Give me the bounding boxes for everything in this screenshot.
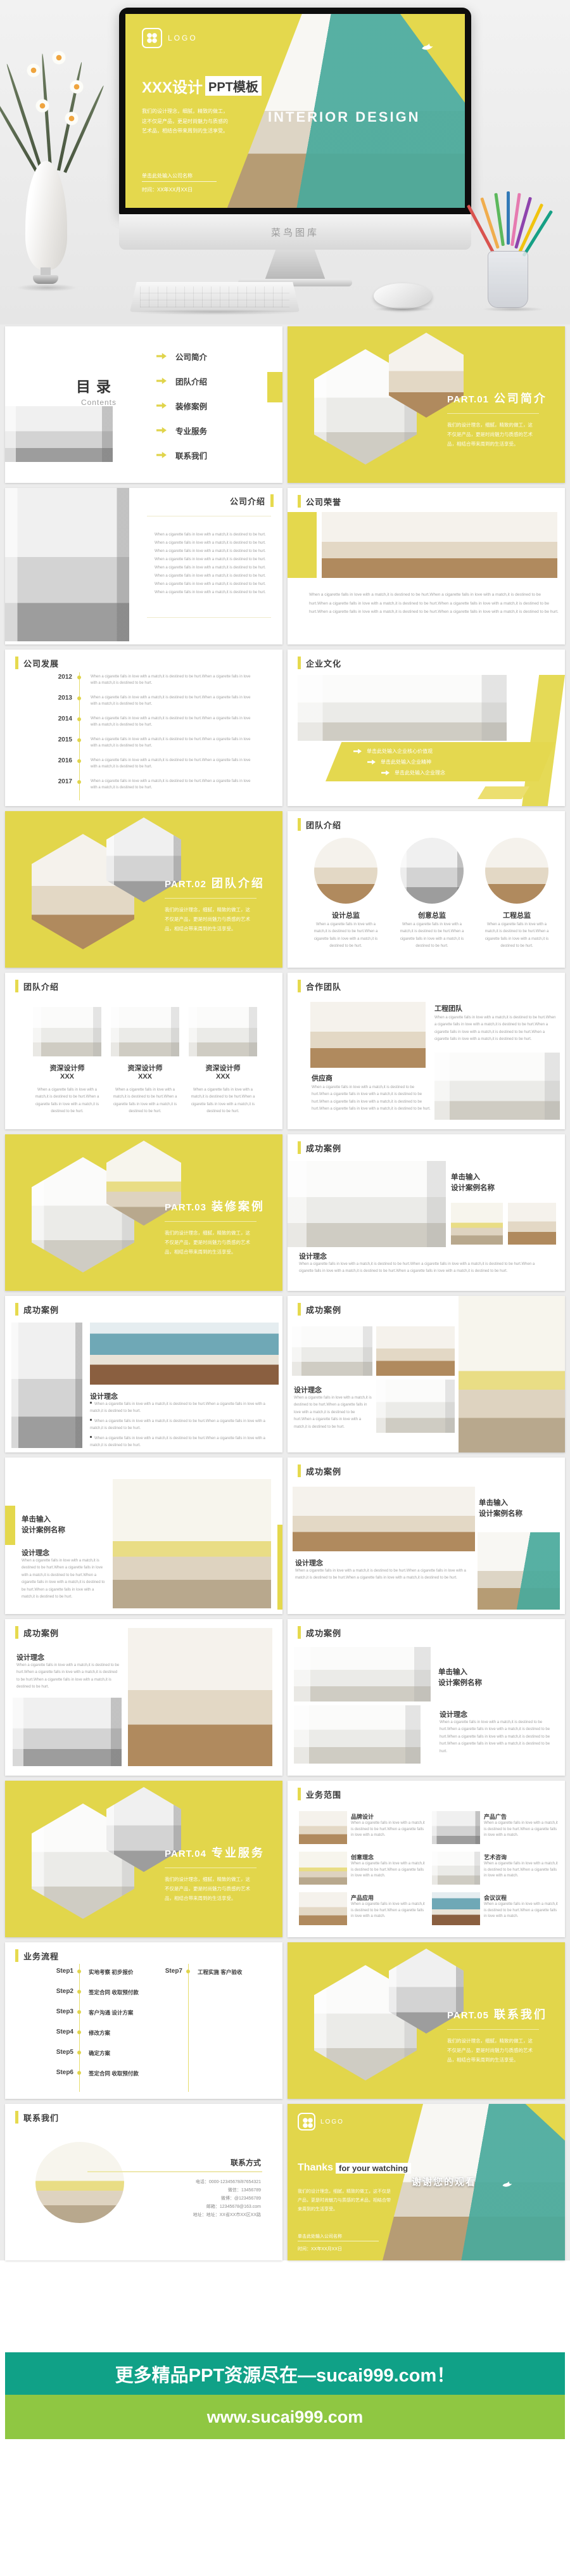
thanks-overlay: 谢谢您的观看 [412, 2175, 476, 2188]
concept-heading: 设计理念 [22, 1548, 49, 1558]
interior-photo [508, 1203, 556, 1245]
service-title: 产品应用 [351, 1894, 374, 1902]
service-title: 品牌设计 [351, 1812, 374, 1821]
slide-part-4: PART.04 专业服务 我们的设计理念，细腻，精致的做工，这不仅是产品，更是时… [5, 1781, 282, 1937]
title-body: 我们的设计理念，细腻，精致的做工，这不仅是产品，更是时尚魅力与质感的艺术品，相结… [142, 106, 232, 136]
accent-bar [298, 818, 301, 831]
timeline-year: 2014 [44, 715, 72, 722]
section-title: PART.03 装修案例 [165, 1198, 265, 1214]
interior-photo [451, 1203, 503, 1245]
interior-photo [294, 1705, 421, 1764]
service-photo [299, 1811, 347, 1844]
accent-bar [298, 1626, 301, 1639]
arrow-icon [156, 378, 167, 384]
interior-photo [293, 1487, 475, 1551]
service-title: 会议议程 [484, 1894, 507, 1902]
interior-photo [292, 1326, 372, 1376]
interior-photo [434, 1053, 560, 1120]
contact-line: 微博：@123456789 [221, 2195, 261, 2201]
case-heading: 单击输入设计案例名称 [451, 1172, 495, 1195]
slide-culture: 企业文化 单击此处输入企业核心价值观 单击此处输入企业精神 单击此处输入企业理念 [288, 650, 565, 806]
slide-title: 业务流程 [15, 1949, 59, 1962]
accent-rect [288, 512, 317, 578]
flower-icon [65, 112, 79, 125]
role-label: 资深设计师XXX [111, 1063, 179, 1080]
case-heading: 单击输入设计案例名称 [479, 1498, 522, 1520]
mouse [374, 283, 432, 309]
interior-photo [459, 1296, 565, 1452]
arrow-icon [381, 771, 389, 776]
interior-photo [5, 406, 113, 462]
concept-heading: 设计理念 [295, 1558, 323, 1568]
screen-caption: INTERIOR DESIGN [268, 109, 421, 125]
accent-bar [298, 1303, 301, 1316]
role-label: 设计总监 [310, 910, 381, 920]
interior-photo [376, 1380, 455, 1433]
service-photo [299, 1852, 347, 1885]
toc-item: 公司简介 [156, 347, 207, 366]
accent-bar [270, 494, 274, 507]
slide-title: 团队介绍 [298, 818, 341, 831]
slide-services: 业务范围 品牌设计 When a cigarette falls in love… [288, 1781, 565, 1937]
logo: LOGO [142, 28, 198, 48]
company-line: 单击此处输入公司名称 [298, 2233, 342, 2240]
accent-bar [298, 1464, 301, 1477]
arrow-icon [156, 402, 167, 409]
toc-item: 装修案例 [156, 396, 207, 415]
pencil-cup [470, 190, 552, 311]
date-line: 时间：XX年XX月XX日 [298, 2246, 342, 2252]
interior-photo [33, 1007, 101, 1056]
culture-bullet: 单击此处输入企业核心价值观 [353, 748, 433, 755]
title-highlight: PPT模板 [205, 76, 262, 96]
slide-toc: 目录 Contents 公司简介 团队介绍 装修案例 专业服务 联系我们 [5, 326, 282, 483]
contact-line: 邮箱：12345678@163.com [206, 2203, 261, 2210]
body-text: When a cigarette falls in love with a ma… [309, 591, 559, 617]
portrait-photo [400, 838, 464, 904]
service-title: 艺术咨询 [484, 1853, 507, 1861]
slide-title: 业务范围 [298, 1788, 341, 1800]
slide-case-5: 成功案例 单击输入设计案例名称 设计理念 When a cigarette fa… [288, 1458, 565, 1614]
concept-heading: 设计理念 [299, 1251, 327, 1261]
interior-photo [478, 1532, 560, 1610]
culture-bullet: 单击此处输入企业理念 [381, 769, 445, 776]
block-heading: 供应商 [312, 1073, 332, 1083]
slide-case-6: 成功案例 设计理念 When a cigarette falls in love… [5, 1619, 282, 1776]
concept-heading: 设计理念 [294, 1385, 322, 1395]
interior-photo [113, 1479, 271, 1608]
slide-part-1: PART.01 公司简介 我们的设计理念，细腻，精致的做工，这不仅是产品，更是时… [288, 326, 565, 483]
slide-thanks: LOGO Thanks for your watching 我们的设计理念，细腻… [288, 2104, 565, 2260]
slide-case-7: 成功案例 单击输入设计案例名称 设计理念 When a cigarette fa… [288, 1619, 565, 1776]
slide-contact: 联系我们 联系方式 电话：0000-12345678/87654321 微信：1… [5, 2104, 282, 2260]
concept-heading: 设计理念 [440, 1709, 467, 1719]
keyboard [130, 282, 300, 312]
monitor-brand: 菜鸟图库 [271, 226, 319, 239]
page-title: XXX设计 PPT模板 [142, 75, 262, 97]
case-heading: 单击输入设计案例名称 [22, 1515, 65, 1537]
slide-title: 公司发展 [15, 657, 59, 669]
contact-line: 地址：地址：XX省XX市XX区XX路 [193, 2212, 261, 2218]
section-body: 我们的设计理念，细腻，精致的做工，这不仅是产品，更是时尚魅力与质感的艺术品，相结… [165, 1228, 255, 1257]
yellow-band [522, 675, 565, 806]
section-title: PART.05 联系我们 [447, 2006, 547, 2022]
timeline-year: 2012 [44, 674, 72, 681]
arrow-icon [353, 749, 362, 754]
portrait-photo [485, 838, 548, 904]
accent-parallelogram [478, 786, 529, 799]
logo-label: LOGO [168, 34, 198, 42]
monitor-chin: 菜鸟图库 [119, 214, 471, 250]
section-body: 我们的设计理念，细腻，精致的做工，这不仅是产品，更是时尚魅力与质感的艺术品，相结… [447, 420, 537, 449]
logo: LOGO [298, 2113, 344, 2131]
toc-item: 专业服务 [156, 421, 207, 440]
accent-bar [15, 2111, 18, 2124]
monitor-stand [265, 250, 326, 280]
arrow-icon [156, 427, 167, 433]
slide-part-5: PART.05 联系我们 我们的设计理念，细腻，精致的做工，这不仅是产品，更是时… [288, 1942, 565, 2099]
arrow-icon [367, 760, 376, 765]
culture-panel: 单击此处输入企业核心价值观 单击此处输入企业精神 单击此处输入企业理念 [326, 742, 555, 781]
slide-title: 公司介绍 [230, 494, 274, 507]
toc-item: 联系我们 [156, 445, 207, 465]
slide-title: 联系我们 [15, 2111, 59, 2124]
timeline-line [188, 1964, 189, 2092]
slide-title: 成功案例 [298, 1303, 341, 1316]
block-heading: 工程团队 [434, 1003, 462, 1013]
flower-icon [35, 99, 49, 113]
interior-photo [189, 1007, 257, 1056]
arrow-icon [156, 452, 167, 458]
thanks-title: Thanks for your watching [298, 2162, 411, 2174]
flower-icon [70, 80, 84, 94]
bird-icon [502, 2180, 513, 2188]
slide-title: 成功案例 [15, 1303, 59, 1316]
slide-title: 企业文化 [298, 657, 341, 669]
hero-banner: 菜鸟图库 INTERIOR DESIGN LOGO XXX设计 PPT模板 我们… [0, 0, 570, 324]
section-body: 我们的设计理念，细腻，精致的做工，这不仅是产品，更是时尚魅力与质感的艺术品，相结… [165, 905, 255, 933]
portrait-photo [314, 838, 377, 904]
flower-icon [52, 51, 66, 65]
role-label: 资深设计师XXX [189, 1063, 257, 1080]
slide-part-2: PART.02 团队介绍 我们的设计理念，细腻，精致的做工，这不仅是产品，更是时… [5, 811, 282, 968]
body-text: When a cigarette falls in love with a ma… [155, 531, 280, 597]
thanks-body: 我们的设计理念，细腻，精致的做工，这不仅是产品，更是时尚魅力与质感的艺术品，相结… [298, 2188, 393, 2214]
interior-photo [294, 1647, 431, 1701]
slide-title: 成功案例 [298, 1464, 341, 1477]
section-body: 我们的设计理念，细腻，精致的做工，这不仅是产品，更是时尚魅力与质感的艺术品，相结… [447, 2036, 537, 2065]
slide-team-directors: 团队介绍 设计总监 创意总监 工程总监 When a cigarette fal… [288, 811, 565, 968]
date-line: 时间：XX年XX月XX日 [142, 186, 193, 193]
accent-bar [15, 1949, 18, 1962]
interior-photo [13, 1698, 122, 1766]
portrait-photo [35, 2142, 124, 2223]
slide-part-3: PART.03 装修案例 我们的设计理念，细腻，精致的做工，这不仅是产品，更是时… [5, 1134, 282, 1291]
slide-case-1: 成功案例 单击输入设计案例名称 设计理念 When a cigarette fa… [288, 1134, 565, 1291]
slide-process: 业务流程 Step1实地考察 初步报价 Step2签定合同 收取预付款 Step… [5, 1942, 282, 2099]
interior-photo [288, 1161, 446, 1247]
section-title: PART.04 专业服务 [165, 1844, 265, 1861]
slide-company-dev: 公司发展 2012When a cigarette falls in love … [5, 650, 282, 806]
logo-icon [298, 2113, 315, 2131]
accent-rect [267, 372, 282, 402]
culture-bullet: 单击此处输入企业精神 [367, 759, 431, 766]
slide-company-intro: 公司介绍 When a cigarette falls in love with… [5, 488, 282, 644]
slide-title: 成功案例 [298, 1626, 341, 1639]
vase-with-flowers [5, 53, 100, 307]
accent-rect [277, 1525, 282, 1610]
logo-label: LOGO [320, 2118, 344, 2125]
role-label: 创意总监 [396, 910, 467, 920]
interior-photo [298, 675, 507, 741]
footer-bottom-spacer [0, 2439, 570, 2576]
slide-team-designers: 团队介绍 资深设计师XXX 资深设计师XXX 资深设计师XXX When a c… [5, 973, 282, 1129]
slide-case-3: 成功案例 设计理念 When a cigarette falls in love… [288, 1296, 565, 1452]
accent-bar [298, 980, 301, 992]
interior-photo [128, 1628, 272, 1766]
interior-photo [5, 488, 129, 641]
accent-bar [298, 1141, 301, 1154]
flower-icon [27, 63, 41, 77]
concept-heading: 设计理念 [16, 1652, 44, 1662]
section-title: PART.01 公司简介 [447, 390, 547, 406]
toc-heading: 目录 Contents [41, 375, 117, 407]
interior-photo [310, 1002, 426, 1068]
site-url-banner[interactable]: www.sucai999.com [5, 2395, 565, 2439]
contact-line: 电话：0000-12345678/87654321 [196, 2179, 261, 2185]
title-main: XXX设计 [142, 75, 203, 97]
promo-banner[interactable]: 更多精品PPT资源尽在—sucai999.com！ [5, 2352, 565, 2395]
service-photo [432, 1852, 480, 1885]
slide-case-2: 成功案例 设计理念 When a cigarette falls in love… [5, 1296, 282, 1452]
section-title: PART.02 团队介绍 [165, 875, 265, 891]
accent-bar [298, 1788, 301, 1800]
accent-bar [15, 980, 18, 992]
service-photo [432, 1811, 480, 1844]
interior-photo [376, 1326, 455, 1376]
timeline-year: 2017 [44, 778, 72, 785]
interior-photo [11, 1323, 82, 1448]
accent-rect [5, 1506, 15, 1545]
bullet-list: When a cigarette falls in love with a ma… [90, 1401, 275, 1449]
slide-title: 成功案例 [15, 1626, 59, 1639]
contact-heading: 联系方式 [231, 2157, 261, 2168]
slide-title: 合作团队 [298, 980, 341, 992]
slide-title: 公司荣誉 [298, 495, 341, 508]
slide-company-honor: 公司荣誉 When a cigarette falls in love with… [288, 488, 565, 644]
bird-icon [421, 42, 434, 51]
slide-case-4: 单击输入设计案例名称 设计理念 When a cigarette falls i… [5, 1458, 282, 1614]
section-body: 我们的设计理念，细腻，精致的做工，这不仅是产品，更是时尚魅力与质感的艺术品，相结… [165, 1874, 255, 1903]
slide-title: 团队介绍 [15, 980, 59, 992]
accent-bar [15, 1303, 18, 1316]
accent-bar [15, 1626, 18, 1639]
slide-title: 成功案例 [298, 1141, 341, 1154]
timeline-year: 2015 [44, 736, 72, 743]
service-title: 产品广告 [484, 1812, 507, 1821]
accent-bar [298, 495, 301, 508]
service-photo [432, 1892, 480, 1925]
contact-line: 微信：13456789 [228, 2187, 261, 2193]
role-label: 工程总监 [481, 910, 552, 920]
accent-bar [298, 657, 301, 669]
concept-heading: 设计理念 [90, 1391, 118, 1401]
timeline-year: 2016 [44, 757, 72, 764]
interior-photo [90, 1323, 279, 1385]
title-slide-preview: INTERIOR DESIGN LOGO XXX设计 PPT模板 我们的设计理念… [125, 14, 465, 208]
interior-photo [322, 512, 557, 578]
timeline-year: 2013 [44, 695, 72, 702]
slide-coop: 合作团队 工程团队 When a cigarette falls in love… [288, 973, 565, 1129]
accent-bar [15, 657, 18, 669]
service-photo [299, 1892, 347, 1925]
yellow-corner [370, 14, 465, 103]
service-title: 创意理念 [351, 1853, 374, 1861]
footer-spacer [0, 2260, 570, 2352]
arrow-icon [156, 353, 167, 359]
role-label: 资深设计师XXX [33, 1063, 101, 1080]
toc-item: 团队介绍 [156, 371, 207, 390]
logo-icon [142, 28, 162, 48]
company-line: 单击此处输入公司名称 [142, 172, 193, 179]
case-heading: 单击输入设计案例名称 [438, 1667, 482, 1689]
slide-grid: 目录 Contents 公司简介 团队介绍 装修案例 专业服务 联系我们 PAR… [0, 324, 570, 2260]
interior-photo [111, 1007, 179, 1056]
